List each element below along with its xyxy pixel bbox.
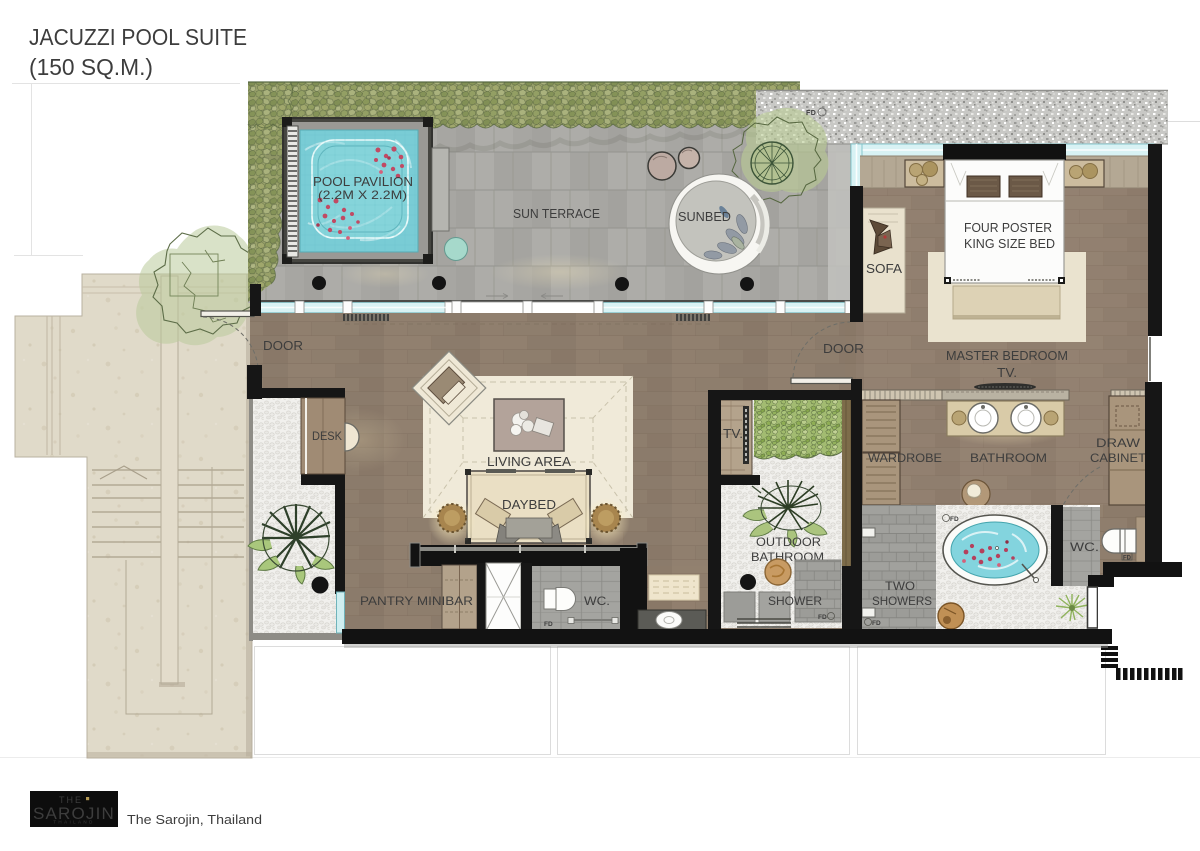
svg-text:FD: FD	[818, 614, 827, 621]
svg-text:SUNBED: SUNBED	[678, 209, 731, 224]
svg-text:TV.: TV.	[997, 366, 1017, 380]
svg-text:TV.: TV.	[723, 427, 743, 441]
svg-text:PANTRY MINIBAR: PANTRY MINIBAR	[360, 596, 473, 608]
svg-text:FD: FD	[950, 516, 959, 523]
svg-text:TWO: TWO	[885, 579, 915, 593]
svg-text:FOUR POSTER: FOUR POSTER	[964, 220, 1052, 235]
svg-text:DESK: DESK	[312, 431, 342, 443]
svg-text:WC.: WC.	[584, 596, 610, 608]
svg-text:BATHROOM: BATHROOM	[970, 451, 1047, 465]
svg-text:FD: FD	[872, 620, 881, 627]
svg-text:DOOR: DOOR	[263, 339, 303, 353]
svg-text:MASTER BEDROOM: MASTER BEDROOM	[946, 348, 1068, 363]
svg-text:SOFA: SOFA	[866, 262, 903, 276]
svg-text:(150 SQ.M.): (150 SQ.M.)	[29, 54, 153, 80]
svg-text:FD: FD	[806, 110, 816, 117]
svg-text:DRAW: DRAW	[1096, 436, 1141, 450]
svg-text:SHOWERS: SHOWERS	[872, 594, 932, 608]
svg-text:FD: FD	[544, 621, 553, 628]
svg-text:KING SIZE BED: KING SIZE BED	[964, 236, 1055, 251]
svg-text:CABINET: CABINET	[1090, 451, 1147, 465]
svg-text:WC.: WC.	[1070, 542, 1099, 554]
svg-text:JACUZZI POOL SUITE: JACUZZI POOL SUITE	[29, 24, 247, 50]
svg-text:SUN TERRACE: SUN TERRACE	[513, 207, 600, 221]
svg-text:LIVING AREA: LIVING AREA	[487, 455, 572, 469]
svg-text:POOL PAVILION: POOL PAVILION	[313, 175, 413, 189]
svg-text:OUTDOOR: OUTDOOR	[756, 535, 821, 549]
svg-text:FD: FD	[1123, 556, 1132, 562]
svg-text:WARDROBE: WARDROBE	[868, 451, 942, 465]
svg-text:(2.2M X 2.2M): (2.2M X 2.2M)	[318, 188, 407, 202]
svg-text:The Sarojin, Thailand: The Sarojin, Thailand	[127, 812, 262, 827]
svg-text:DAYBED: DAYBED	[502, 497, 556, 512]
svg-text:THAILAND: THAILAND	[53, 820, 94, 825]
svg-text:DOOR: DOOR	[823, 342, 864, 356]
svg-text:SHOWER: SHOWER	[768, 594, 822, 608]
